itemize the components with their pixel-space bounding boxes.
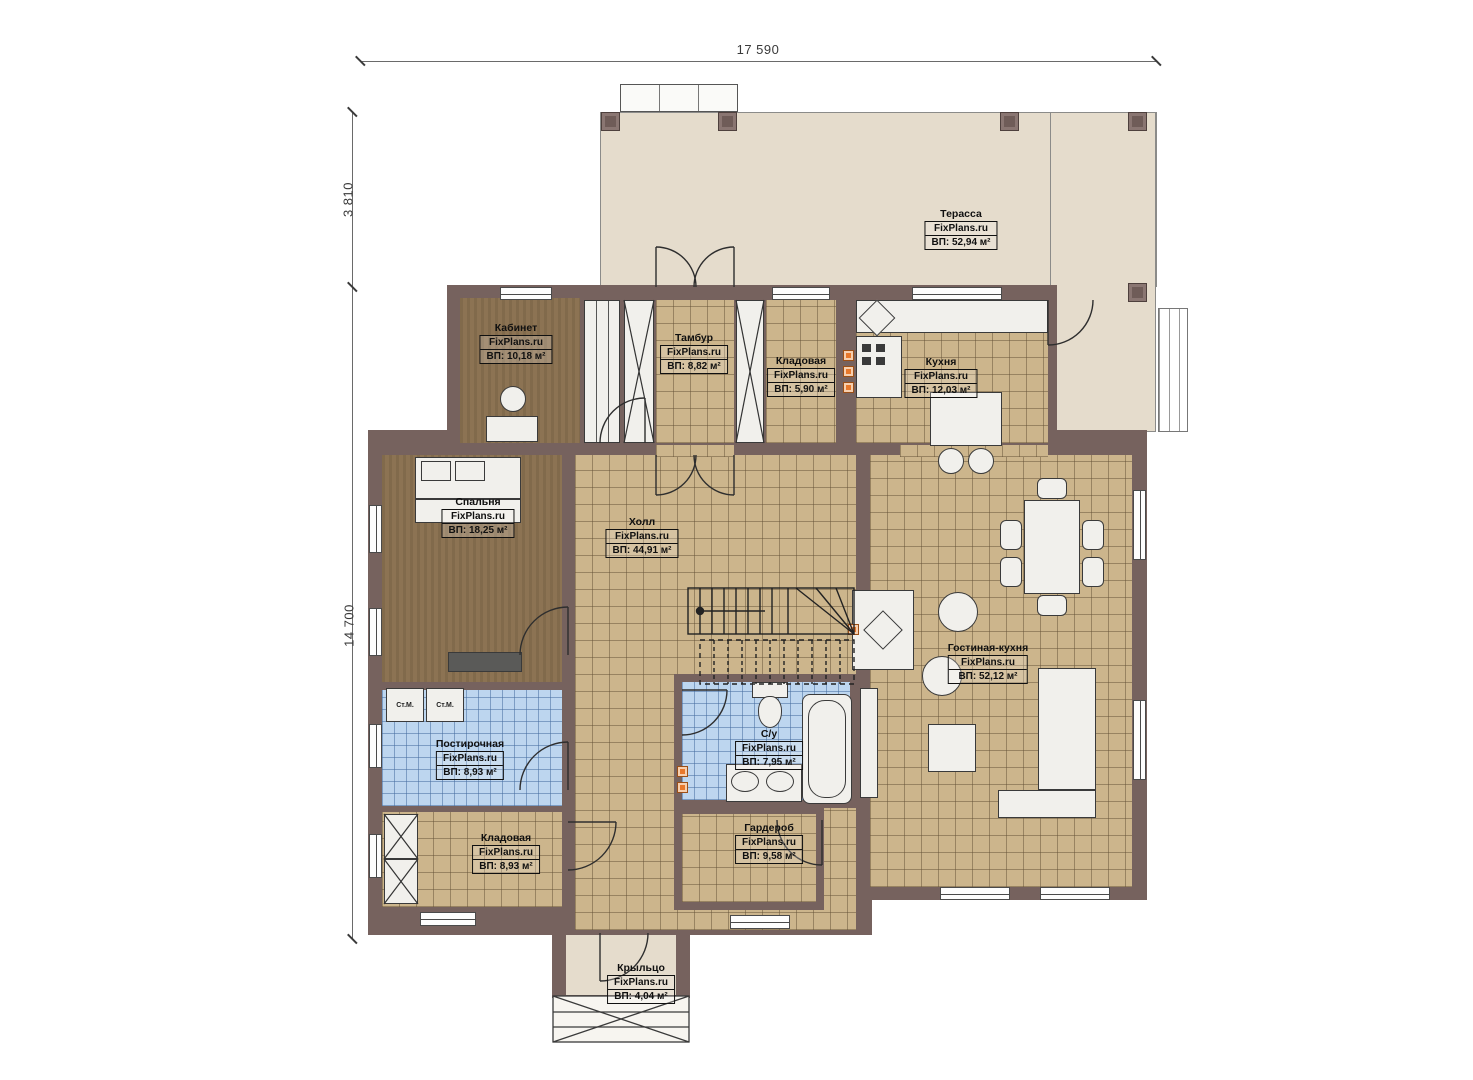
terrace-pillar <box>1128 112 1147 131</box>
terrace-pillar <box>718 112 737 131</box>
sink <box>766 771 794 792</box>
window <box>369 834 382 878</box>
bathtub-inner <box>808 700 846 798</box>
window <box>730 915 790 929</box>
utility-marker <box>677 766 688 777</box>
terrace-pillar <box>1000 112 1019 131</box>
window <box>369 608 382 656</box>
office-builtin-wardrobe <box>584 300 620 443</box>
room-label-vestibule: Тамбур FixPlans.ru ВП: 8,82 м² <box>660 332 728 374</box>
dining-chair <box>1000 557 1022 587</box>
terrace-steps <box>1158 308 1188 432</box>
window <box>1133 700 1146 780</box>
opening <box>656 445 734 457</box>
utility-marker <box>677 782 688 793</box>
stove-burner <box>876 344 885 352</box>
dining-chair <box>1082 557 1104 587</box>
washing-machine-label: Ст.М. <box>426 688 464 722</box>
room-label-laundry: Постирочная FixPlans.ru ВП: 8,93 м² <box>436 738 504 780</box>
dimension-height-main: 14 700 <box>342 591 357 661</box>
sink <box>731 771 759 792</box>
toilet-bowl <box>758 696 782 728</box>
office-chair <box>500 386 526 412</box>
washing-machine-label: Ст.М. <box>386 688 424 722</box>
armchair <box>938 592 978 632</box>
kitchen-stool <box>938 448 964 474</box>
window <box>1040 887 1110 900</box>
dining-chair <box>1000 520 1022 550</box>
closet-shaft <box>736 300 764 443</box>
stove-burner <box>862 357 871 365</box>
closet <box>384 814 418 859</box>
room-label-bedroom: Спальня FixPlans.ru ВП: 18,25 м² <box>441 496 514 538</box>
utility-marker <box>843 382 854 393</box>
office-desk <box>486 416 538 442</box>
window <box>369 724 382 768</box>
terrace-pillar <box>1128 283 1147 302</box>
window <box>1133 490 1146 560</box>
room-label-pantry-bottom: Кладовая FixPlans.ru ВП: 8,93 м² <box>472 832 540 874</box>
room-label-bathroom: С/у FixPlans.ru ВП: 7,95 м² <box>735 728 803 770</box>
utility-marker <box>843 366 854 377</box>
room-label-terrace: Терасса FixPlans.ru ВП: 52,94 м² <box>924 208 997 250</box>
pocket-door <box>860 688 878 798</box>
bed-pillow <box>421 461 451 481</box>
closet-shaft <box>624 300 654 443</box>
room-label-pantry-top: Кладовая FixPlans.ru ВП: 5,90 м² <box>767 355 835 397</box>
terrace-pillar <box>601 112 620 131</box>
window <box>772 287 830 300</box>
room-label-porch: Крыльцо FixPlans.ru ВП: 4,04 м² <box>607 962 675 1004</box>
terrace-floor <box>1050 112 1156 432</box>
dining-chair <box>1082 520 1104 550</box>
room-label-wardrobe: Гардероб FixPlans.ru ВП: 9,58 м² <box>735 822 803 864</box>
window <box>912 287 1002 300</box>
window <box>500 287 552 300</box>
kitchen-island <box>930 392 1002 446</box>
stove-burner <box>862 344 871 352</box>
dimension-height-upper: 3 810 <box>341 170 356 230</box>
window <box>940 887 1010 900</box>
dimension-line-top <box>360 61 1156 62</box>
bed-pillow <box>455 461 485 481</box>
stove-burner <box>876 357 885 365</box>
closet <box>384 859 418 904</box>
room-label-living-kitchen: Гостиная-кухня FixPlans.ru ВП: 52,12 м² <box>948 642 1028 684</box>
dimension-width-top: 17 590 <box>360 42 1156 57</box>
bedroom-dresser <box>448 652 522 672</box>
floor-plan: 17 590 3 810 14 700 <box>0 0 1473 1080</box>
window <box>420 912 476 926</box>
window <box>369 505 382 553</box>
entrance-canopy <box>620 84 738 112</box>
coffee-table <box>928 724 976 772</box>
room-label-kitchen: Кухня FixPlans.ru ВП: 12,03 м² <box>904 356 977 398</box>
sofa <box>1038 668 1096 790</box>
utility-marker <box>848 624 859 635</box>
room-label-office: Кабинет FixPlans.ru ВП: 10,18 м² <box>479 322 552 364</box>
dining-chair <box>1037 595 1067 616</box>
dimension-line-left <box>352 112 353 940</box>
kitchen-stool <box>968 448 994 474</box>
room-label-hall: Холл FixPlans.ru ВП: 44,91 м² <box>605 516 678 558</box>
dining-chair <box>1037 478 1067 499</box>
sofa <box>998 790 1096 818</box>
dining-table <box>1024 500 1080 594</box>
utility-marker <box>843 350 854 361</box>
